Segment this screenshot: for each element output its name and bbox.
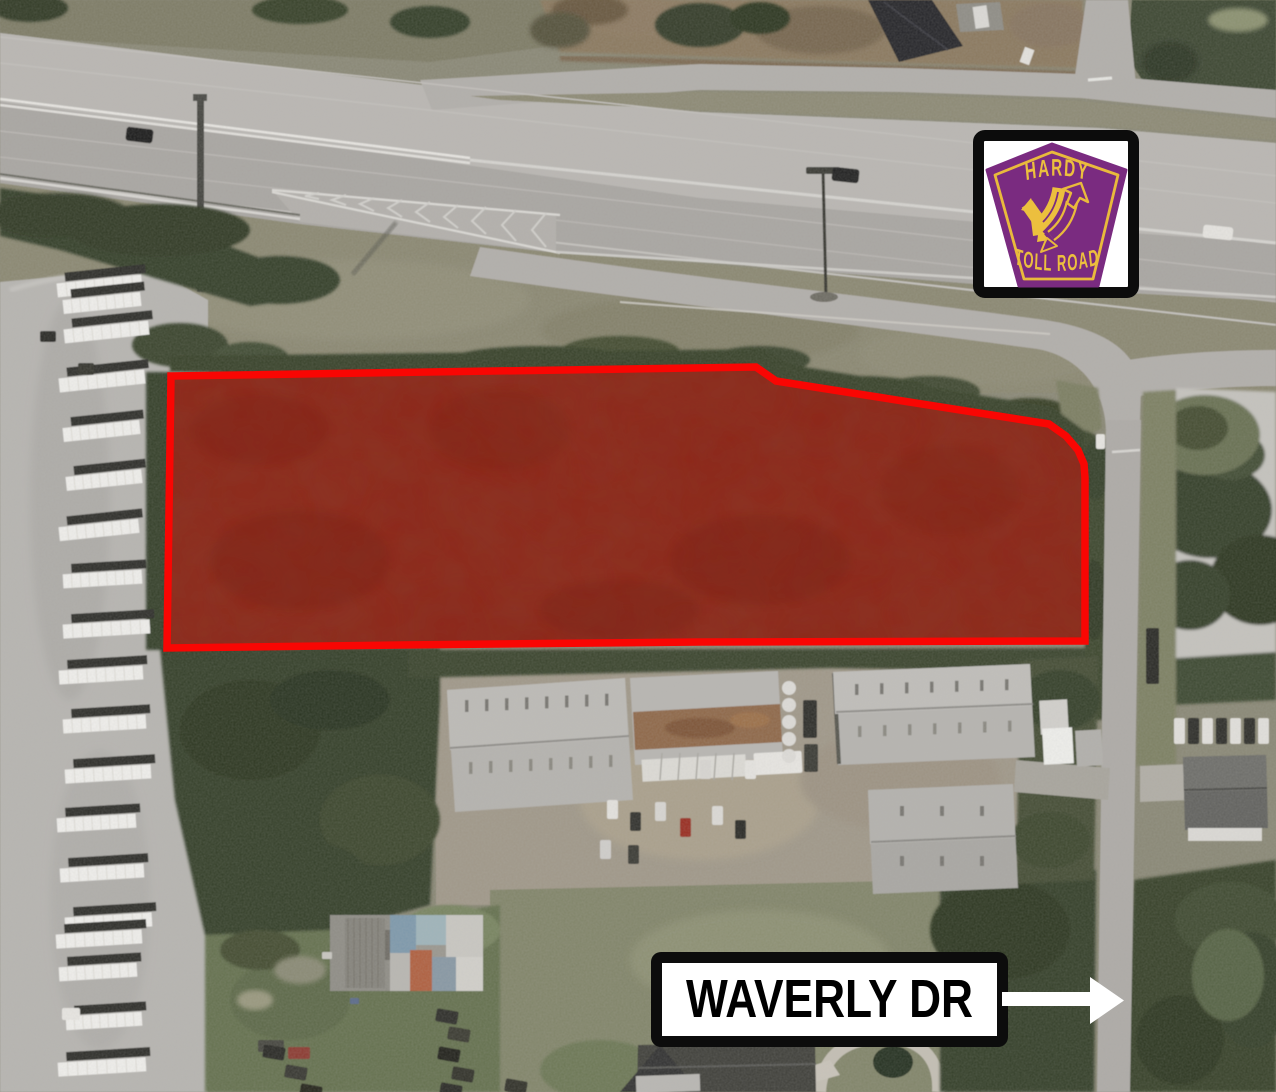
svg-text:HARDY: HARDY [1024,155,1090,186]
